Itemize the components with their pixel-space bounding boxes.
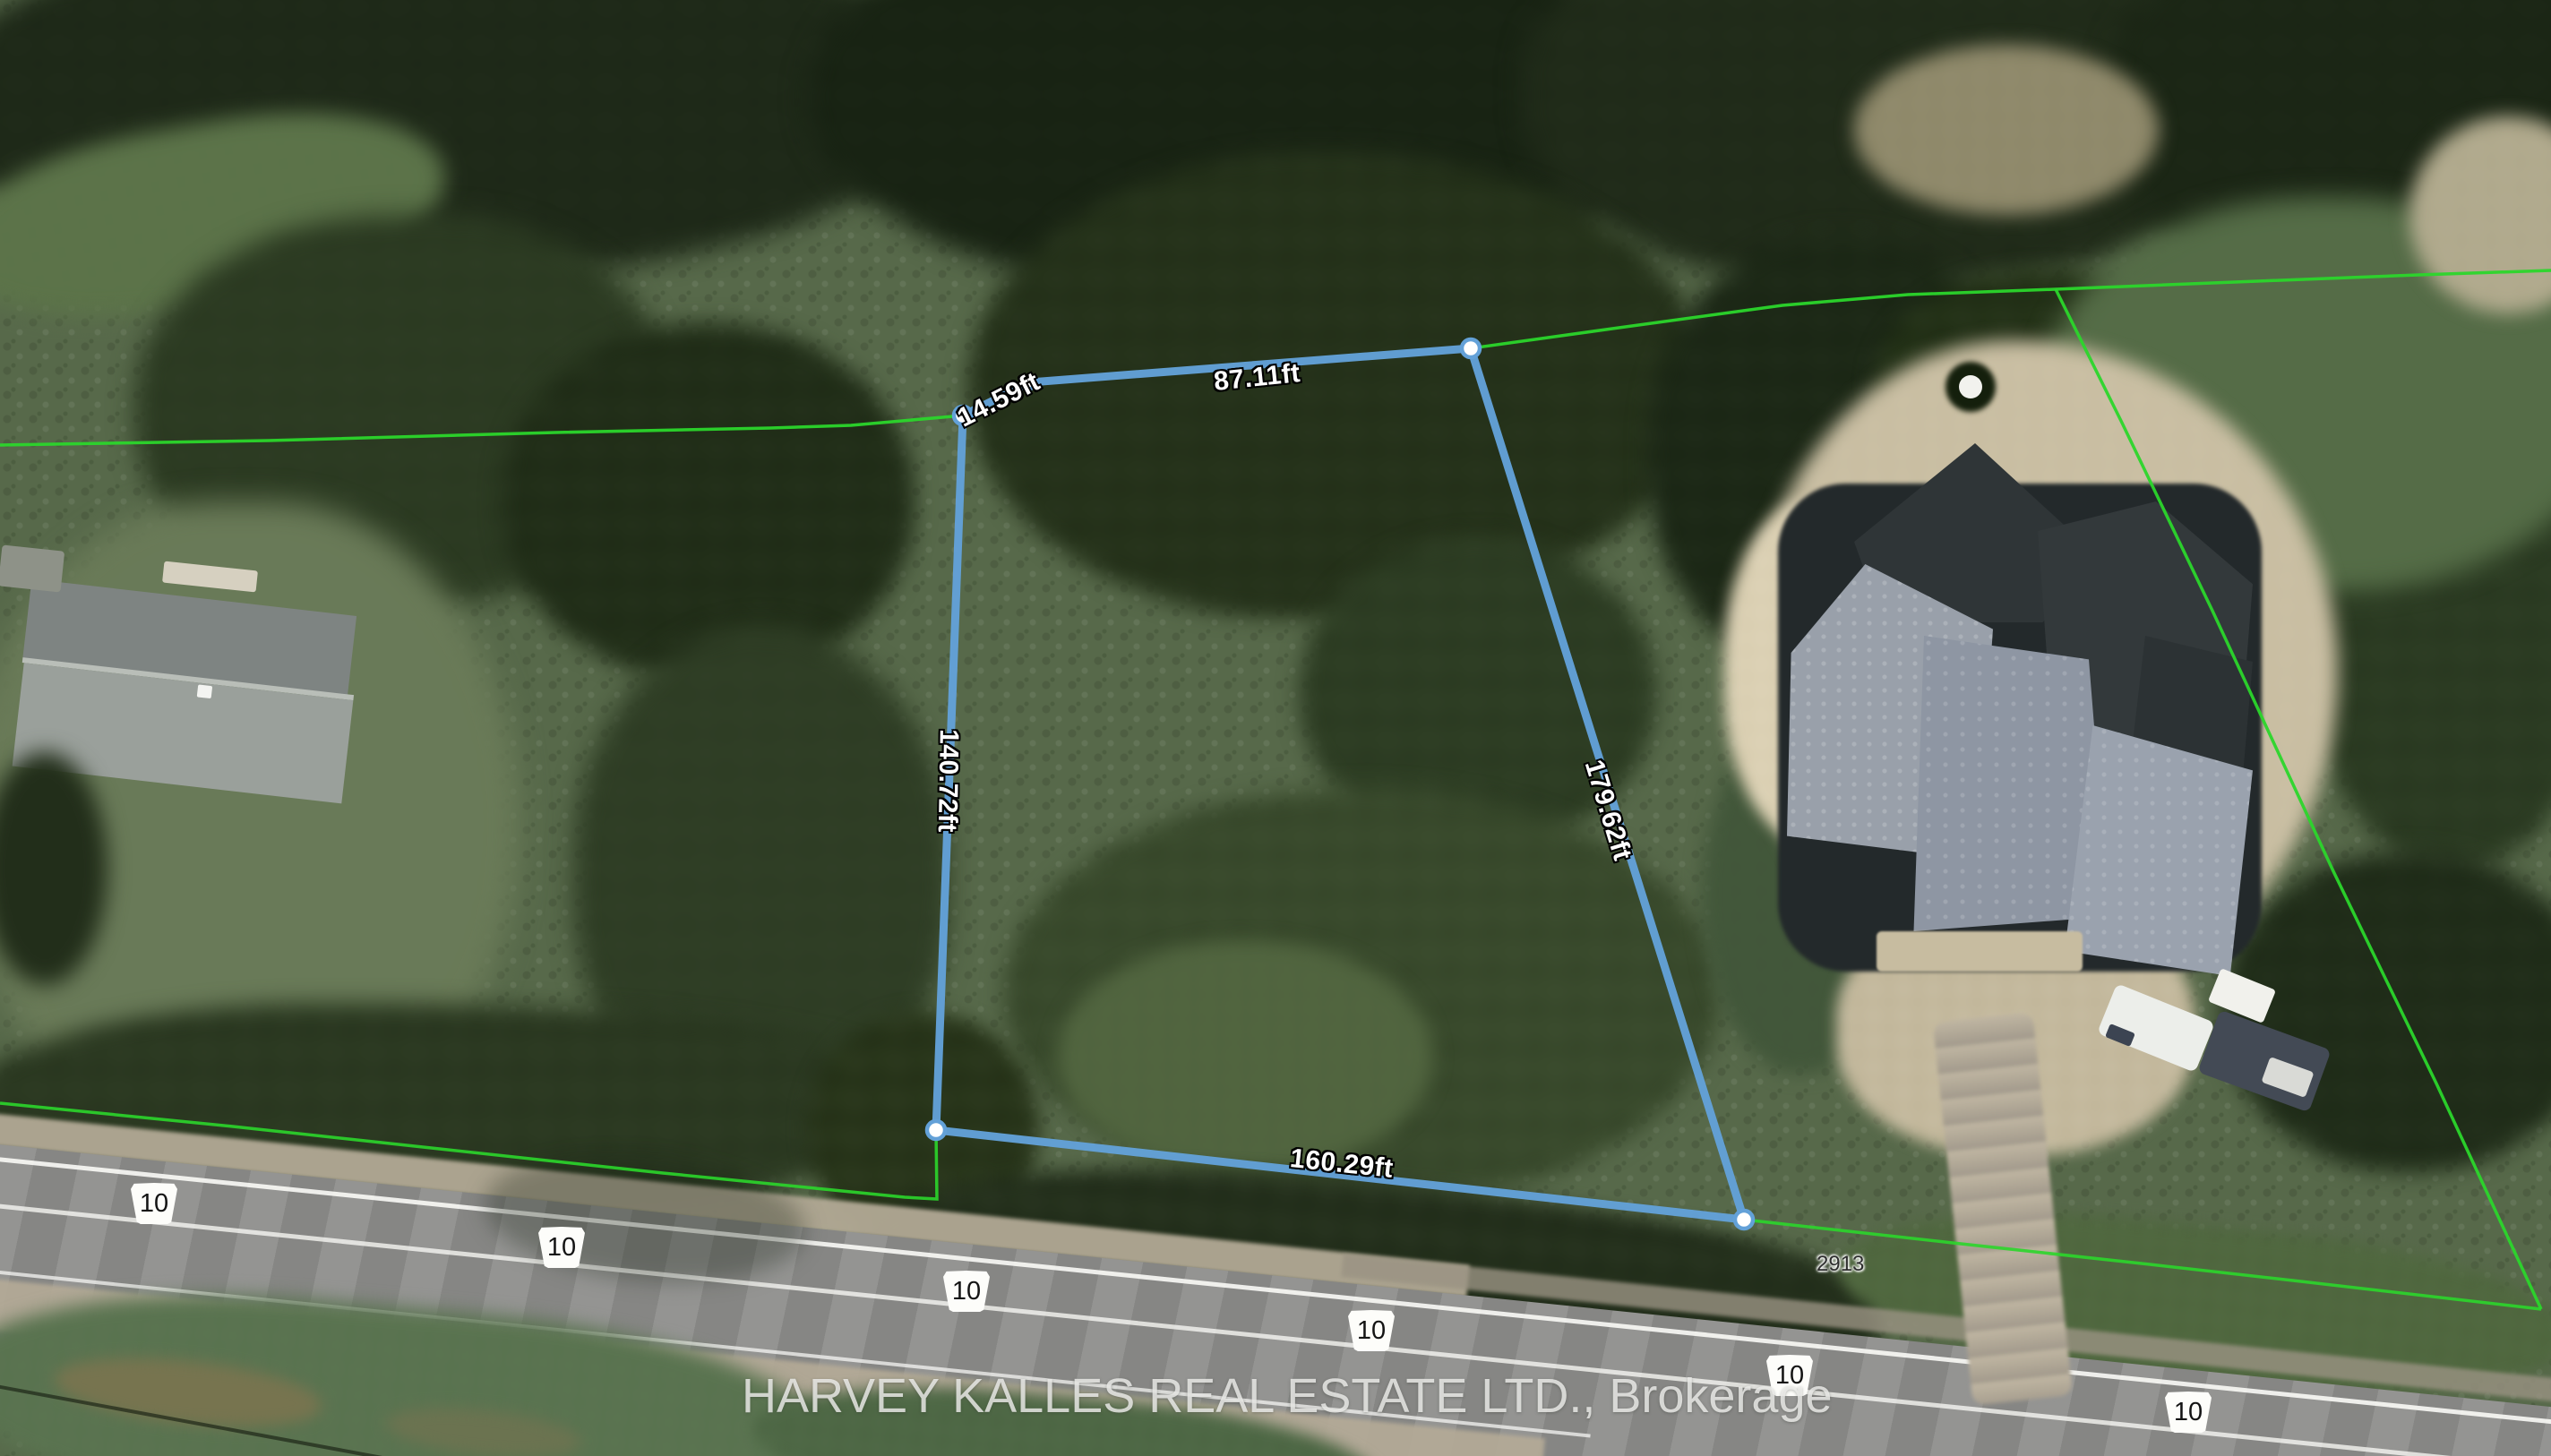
highway-shield-label: 10 <box>2174 1398 2203 1427</box>
highway-shield-label: 10 <box>547 1233 576 1263</box>
watermark: HARVEY KALLES REAL ESTATE LTD., Brokerag… <box>742 1368 1808 1424</box>
parcel-vertex[interactable] <box>927 1121 945 1139</box>
parcel-vertex[interactable] <box>1735 1211 1753 1229</box>
parcel-outline[interactable] <box>936 348 1744 1220</box>
property-boundary-line <box>1471 270 2551 348</box>
highway-shield: 10 <box>943 1271 990 1312</box>
satellite-map[interactable]: 14.59ft 87.11ft 140.72ft 179.62ft 160.29… <box>0 0 2551 1456</box>
measurement-label-left: 140.72ft <box>932 729 964 833</box>
property-boundary-line <box>2056 289 2541 1309</box>
highway-shield-label: 10 <box>952 1277 981 1306</box>
address-label: 2913 <box>1817 1252 1864 1277</box>
highway-shield: 10 <box>1348 1310 1395 1351</box>
highway-shield: 10 <box>131 1183 177 1224</box>
parcel-vertex[interactable] <box>1462 339 1480 357</box>
property-boundary-line <box>0 415 963 445</box>
highway-shield-label: 10 <box>1357 1316 1386 1346</box>
highway-shield: 10 <box>538 1227 585 1268</box>
highway-shield: 10 <box>2165 1392 2212 1433</box>
highway-shield-label: 10 <box>140 1189 168 1219</box>
